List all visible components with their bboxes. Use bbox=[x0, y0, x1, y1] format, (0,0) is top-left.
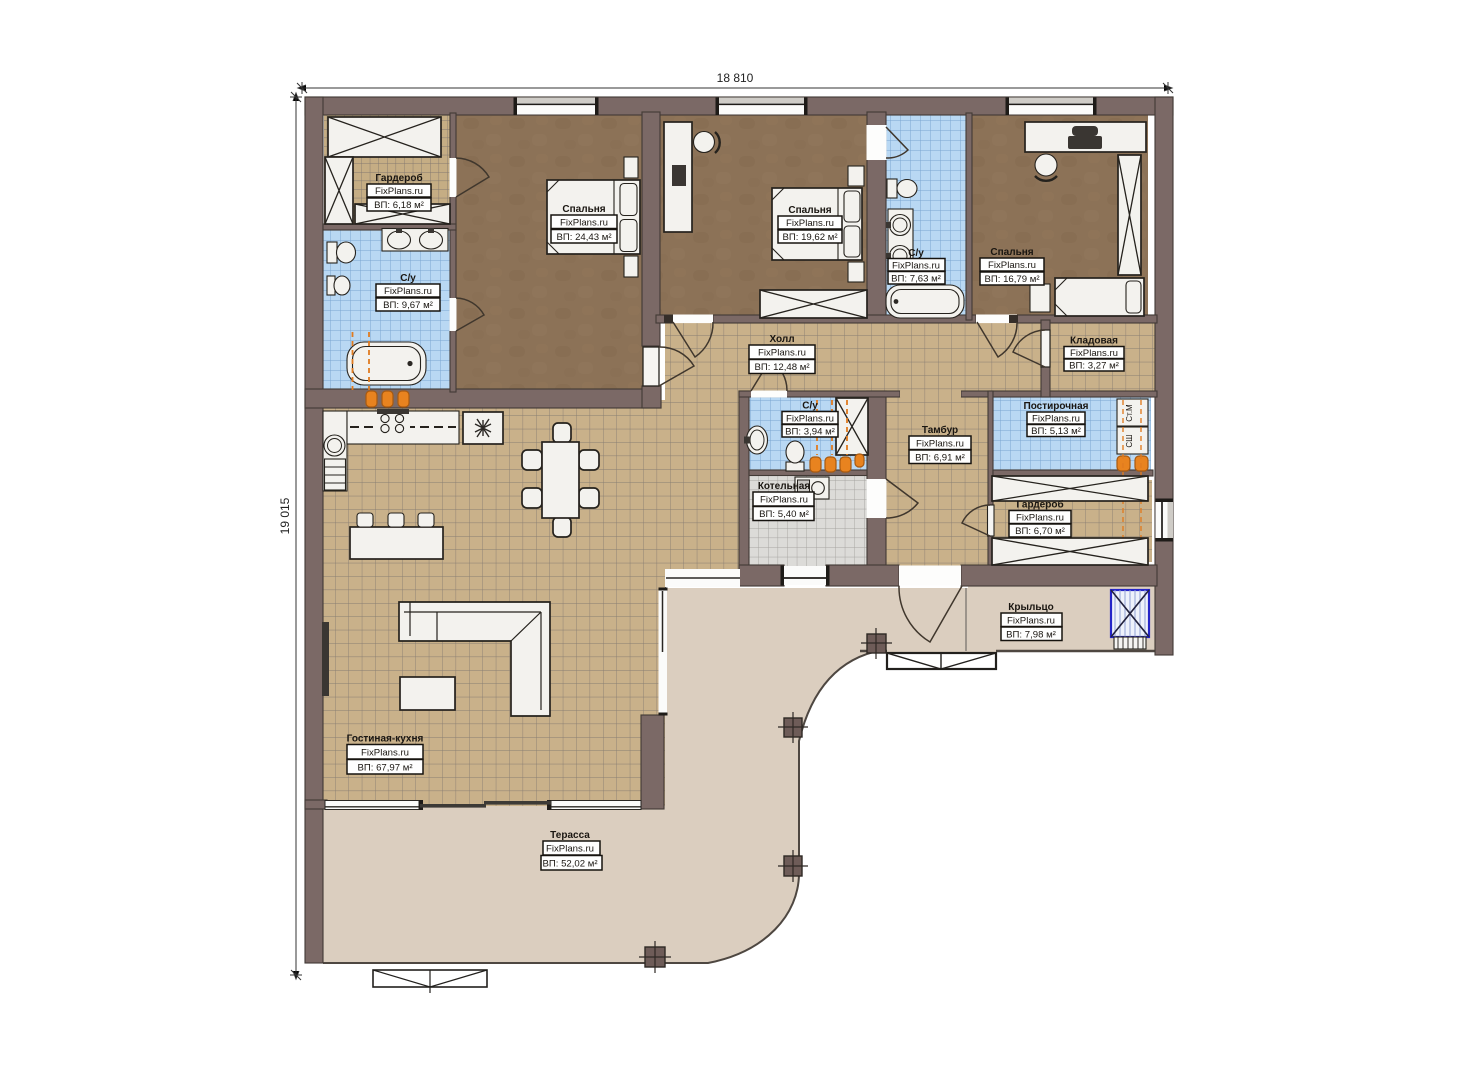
svg-text:Крыльцо: Крыльцо bbox=[1008, 602, 1054, 613]
svg-text:Спальня: Спальня bbox=[562, 204, 605, 215]
svg-text:ВП: 24,43 м²: ВП: 24,43 м² bbox=[556, 232, 612, 243]
svg-text:FixPlans.ru: FixPlans.ru bbox=[375, 186, 423, 197]
svg-text:FixPlans.ru: FixPlans.ru bbox=[1070, 348, 1118, 359]
svg-text:Гардероб: Гардероб bbox=[375, 172, 422, 184]
svg-text:С/у: С/у bbox=[400, 273, 416, 284]
svg-text:ВП: 6,18 м²: ВП: 6,18 м² bbox=[374, 200, 425, 211]
svg-text:19 015: 19 015 bbox=[278, 497, 292, 534]
svg-text:ВП: 52,02 м²: ВП: 52,02 м² bbox=[542, 859, 598, 870]
svg-text:FixPlans.ru: FixPlans.ru bbox=[988, 260, 1036, 271]
svg-text:Гостиная-кухня: Гостиная-кухня bbox=[347, 734, 424, 745]
svg-text:ВП: 5,40 м²: ВП: 5,40 м² bbox=[759, 509, 810, 520]
svg-text:С/у: С/у bbox=[802, 401, 818, 412]
svg-text:FixPlans.ru: FixPlans.ru bbox=[786, 218, 834, 229]
svg-text:FixPlans.ru: FixPlans.ru bbox=[546, 844, 594, 855]
svg-text:ВП: 67,97 м²: ВП: 67,97 м² bbox=[357, 763, 413, 774]
svg-text:ВП: 3,27 м²: ВП: 3,27 м² bbox=[1069, 361, 1120, 372]
svg-text:FixPlans.ru: FixPlans.ru bbox=[384, 286, 432, 297]
svg-text:Ст.М: Ст.М bbox=[1125, 404, 1134, 422]
svg-text:Терасса: Терасса bbox=[550, 830, 590, 841]
svg-text:18 810: 18 810 bbox=[717, 71, 754, 85]
svg-text:Холл: Холл bbox=[769, 334, 794, 345]
svg-text:ВП: 19,62 м²: ВП: 19,62 м² bbox=[782, 232, 838, 243]
svg-text:СШ: СШ bbox=[1125, 434, 1134, 447]
svg-text:Кладовая: Кладовая bbox=[1070, 336, 1118, 347]
svg-text:FixPlans.ru: FixPlans.ru bbox=[916, 439, 964, 450]
svg-text:FixPlans.ru: FixPlans.ru bbox=[1032, 414, 1080, 425]
svg-text:FixPlans.ru: FixPlans.ru bbox=[786, 414, 834, 425]
svg-text:Спальня: Спальня bbox=[788, 205, 831, 216]
svg-text:ВП: 9,67 м²: ВП: 9,67 м² bbox=[383, 300, 434, 311]
svg-text:FixPlans.ru: FixPlans.ru bbox=[760, 495, 808, 506]
svg-text:ВП: 7,63 м²: ВП: 7,63 м² bbox=[891, 274, 942, 285]
svg-text:Тамбур: Тамбур bbox=[922, 424, 958, 436]
svg-text:FixPlans.ru: FixPlans.ru bbox=[1007, 616, 1055, 627]
svg-text:ВП: 16,79 м²: ВП: 16,79 м² bbox=[984, 274, 1040, 285]
svg-text:FixPlans.ru: FixPlans.ru bbox=[361, 748, 409, 759]
svg-text:ВП: 12,48 м²: ВП: 12,48 м² bbox=[754, 362, 810, 373]
svg-text:Спальня: Спальня bbox=[990, 247, 1033, 258]
svg-text:Котельная: Котельная bbox=[758, 481, 811, 492]
svg-text:ВП: 6,70 м²: ВП: 6,70 м² bbox=[1015, 526, 1066, 537]
svg-text:Постирочная: Постирочная bbox=[1024, 401, 1089, 412]
svg-text:FixPlans.ru: FixPlans.ru bbox=[560, 218, 608, 229]
svg-text:ВП: 7,98 м²: ВП: 7,98 м² bbox=[1006, 630, 1057, 641]
svg-text:ВП: 6,91 м²: ВП: 6,91 м² bbox=[915, 453, 966, 464]
svg-text:Гардероб: Гардероб bbox=[1016, 499, 1063, 511]
svg-text:FixPlans.ru: FixPlans.ru bbox=[1016, 513, 1064, 524]
svg-text:FixPlans.ru: FixPlans.ru bbox=[758, 348, 806, 359]
svg-text:С/у: С/у bbox=[908, 248, 924, 259]
svg-text:FixPlans.ru: FixPlans.ru bbox=[892, 261, 940, 272]
svg-text:ВП: 3,94 м²: ВП: 3,94 м² bbox=[785, 427, 836, 438]
svg-text:ВП: 5,13 м²: ВП: 5,13 м² bbox=[1031, 426, 1082, 437]
